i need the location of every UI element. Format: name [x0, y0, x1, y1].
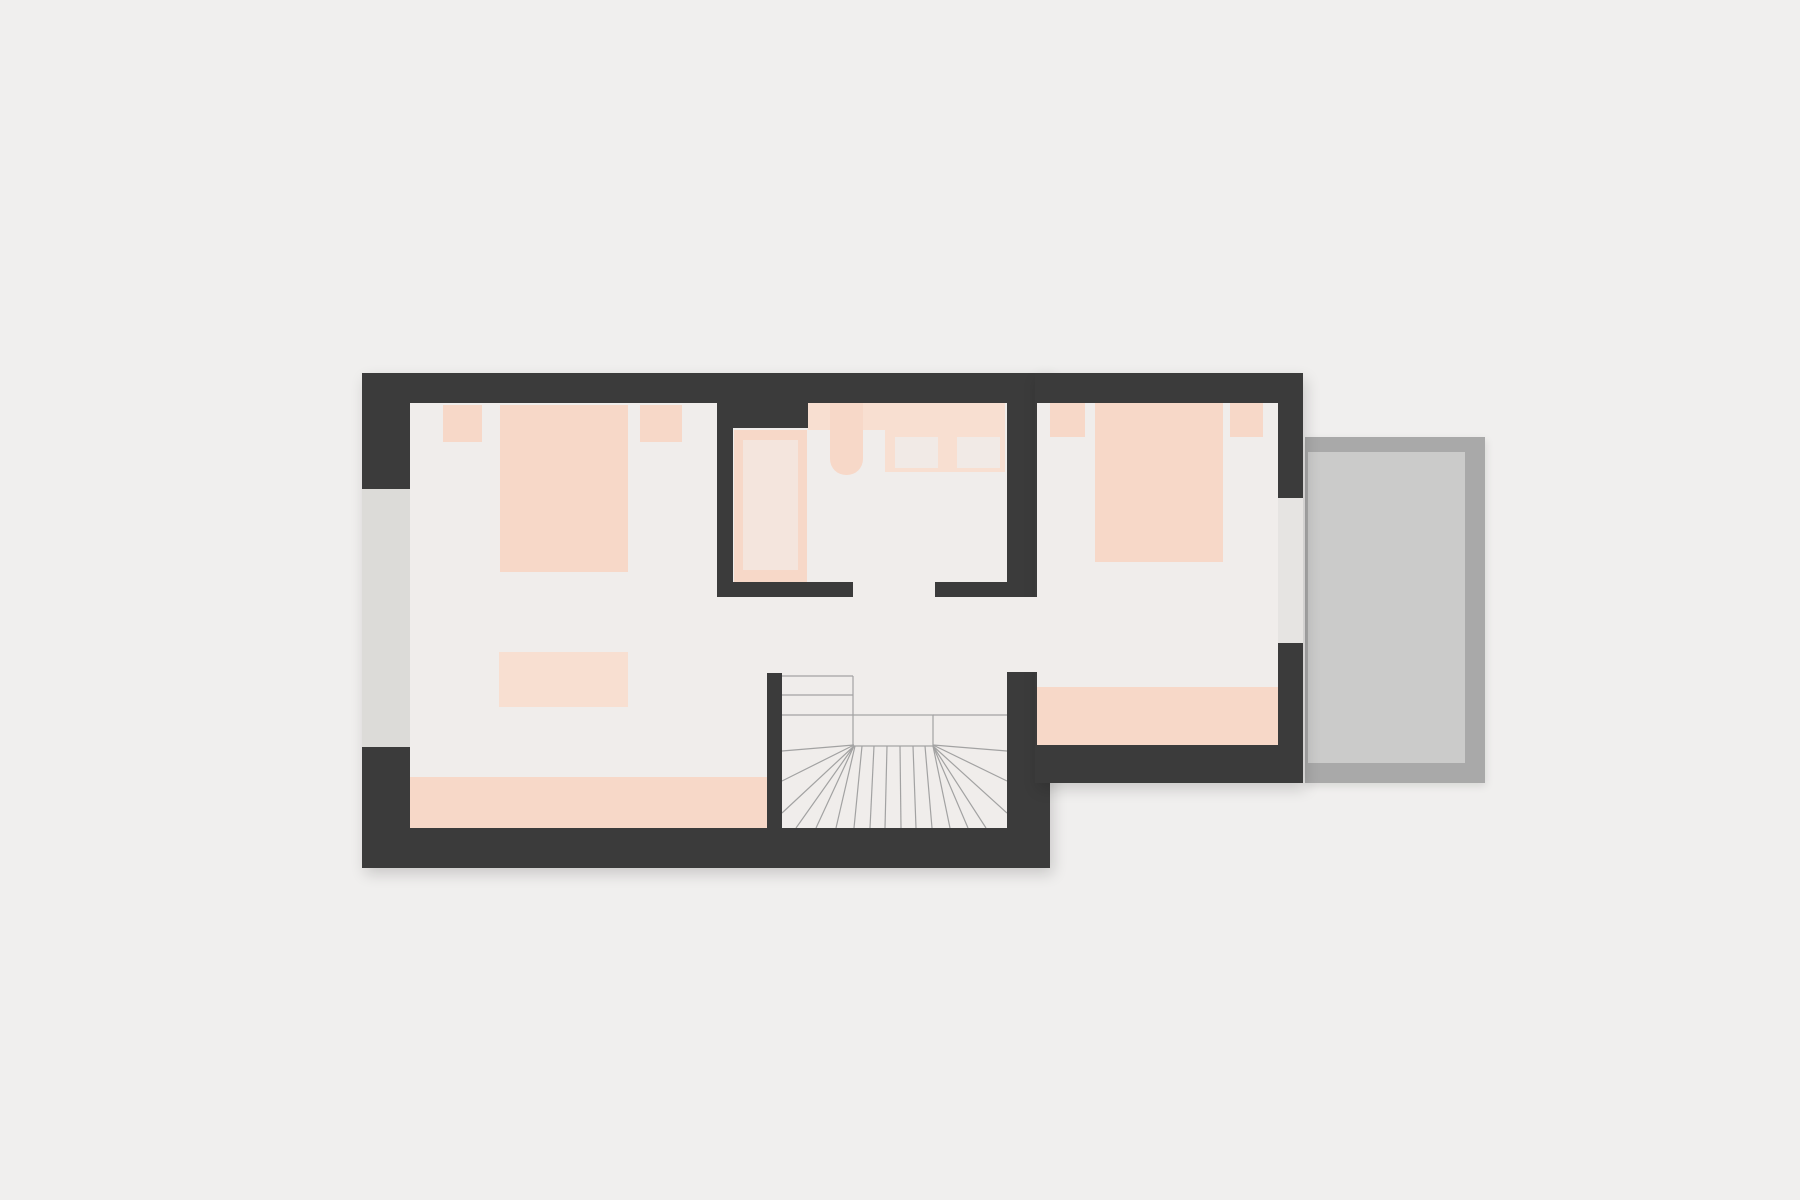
bedroom-left-nightstand-b [640, 405, 682, 442]
washbasin [830, 403, 863, 475]
bathroom-door-opening [853, 582, 935, 597]
bedroom-left-nightstand-a [443, 405, 482, 442]
balcony [1305, 437, 1485, 783]
bedroom-left-bed [500, 405, 628, 572]
hallway-floor [717, 597, 1007, 673]
bedroom-right-nightstand-a [1050, 403, 1085, 437]
bedroom-right-nightstand-b [1230, 403, 1263, 437]
window-left-wall [362, 489, 410, 747]
balcony-door-opening [1278, 498, 1303, 643]
balcony-floor [1308, 452, 1465, 763]
winder-staircase [782, 673, 1007, 828]
floor-plan-canvas [0, 0, 1800, 1200]
bedroom-left-wardrobe-strip [410, 777, 767, 828]
bathtub [734, 430, 807, 582]
bedroom-right-door-opening [1007, 597, 1037, 672]
bedroom-left-rug [499, 652, 628, 707]
bathroom-appliance-a [895, 437, 938, 468]
bedroom-right-bed [1095, 403, 1223, 562]
bathtub-basin [743, 440, 798, 570]
bathroom-appliance-b [957, 437, 1000, 468]
bedroom-right-dresser-strip [1037, 687, 1278, 745]
